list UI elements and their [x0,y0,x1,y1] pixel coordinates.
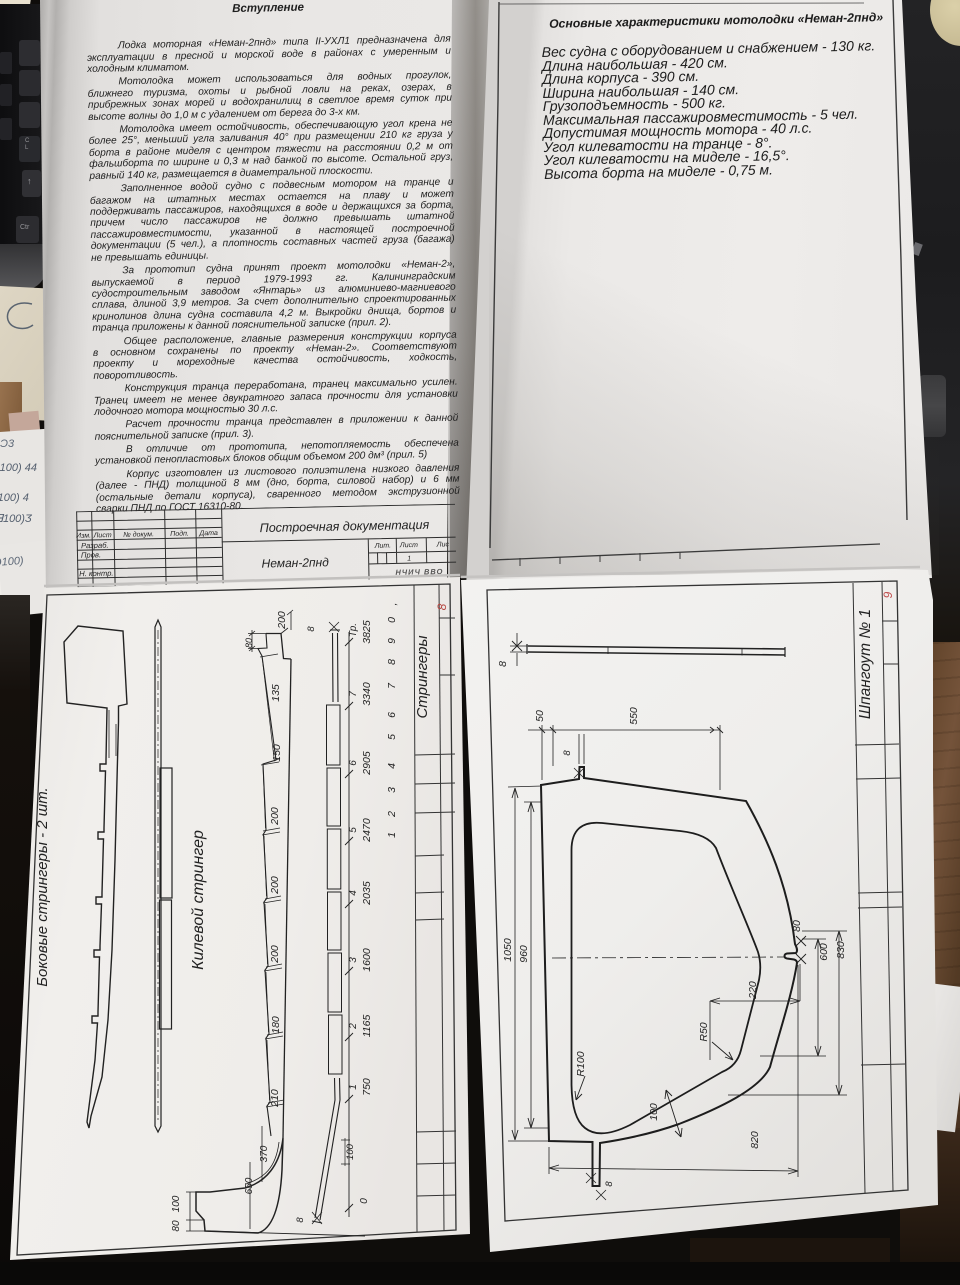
svg-text:Стрингеры: Стрингеры [414,635,431,718]
svg-text:550: 550 [628,707,640,725]
svg-text:820: 820 [749,1131,761,1149]
svg-text:1050: 1050 [502,938,514,962]
svg-text:180: 180 [270,1016,282,1034]
svg-text:370: 370 [259,1145,270,1162]
svg-text:600: 600 [818,943,830,961]
svg-text:R100: R100 [575,1051,587,1076]
svg-text:Разраб.: Разраб. [81,541,109,551]
svg-text:200: 200 [269,807,281,826]
svg-text:8: 8 [306,626,317,632]
svg-text:5: 5 [386,734,398,740]
svg-text:№ докум.: № докум. [123,530,154,539]
svg-text:2905: 2905 [361,751,373,776]
svg-text:100: 100 [345,1143,356,1160]
svg-text:200: 200 [276,611,288,630]
svg-text:2: 2 [386,811,398,818]
svg-text:5: 5 [348,827,359,833]
svg-text:Подп.: Подп. [170,530,189,538]
svg-text:8: 8 [386,659,398,665]
svg-text:Шпангоут № 1: Шпангоут № 1 [857,609,874,719]
svg-text:4: 4 [348,890,359,896]
svg-text:80: 80 [244,638,254,648]
svg-text:200: 200 [269,876,281,895]
svg-text:2470: 2470 [361,818,373,843]
svg-text:80: 80 [791,920,803,932]
svg-text:Пров.: Пров. [81,550,101,559]
svg-text:4: 4 [386,763,398,769]
svg-text:80: 80 [171,1220,182,1232]
svg-text:200: 200 [269,945,281,964]
svg-text:3340: 3340 [361,682,373,706]
svg-text:,: , [387,603,399,606]
svg-text:Килевой стрингер: Килевой стрингер [190,830,207,970]
svg-text:1165: 1165 [361,1015,373,1038]
svg-text:8: 8 [295,1217,306,1223]
svg-text:100: 100 [171,1195,182,1212]
svg-text:R50: R50 [698,1022,710,1041]
svg-text:8: 8 [562,750,573,756]
svg-text:Изм.: Изм. [76,533,91,540]
svg-text:1600: 1600 [361,948,373,972]
svg-text:Лист: Лист [399,542,418,549]
svg-text:8: 8 [604,1181,615,1187]
svg-text:1: 1 [386,832,398,838]
svg-text:Лит.: Лит. [374,542,392,549]
svg-text:2: 2 [348,1023,359,1030]
svg-text:750: 750 [361,1078,373,1096]
svg-text:100: 100 [648,1103,660,1121]
svg-text:Лист: Лист [93,532,112,539]
svg-text:6: 6 [348,760,359,766]
svg-text:650: 650 [244,1177,255,1194]
svg-text:0: 0 [359,1198,370,1204]
svg-text:Построечная документация: Построечная документация [260,518,430,535]
svg-text:135: 135 [270,684,282,702]
svg-text:9: 9 [386,638,398,644]
svg-text:3: 3 [348,957,359,963]
svg-text:8: 8 [497,661,509,667]
svg-text:1: 1 [407,556,411,563]
svg-text:960: 960 [518,945,530,963]
svg-text:Дата: Дата [198,530,218,537]
svg-text:150: 150 [271,744,283,762]
svg-text:7: 7 [348,691,359,697]
svg-text:2035: 2035 [361,881,373,906]
svg-text:9: 9 [881,591,895,598]
svg-text:Лис: Лис [436,541,450,548]
svg-text:210: 210 [269,1089,281,1108]
svg-text:Неман-2пнд: Неман-2пнд [261,555,329,570]
svg-text:Тр.: Тр. [348,623,359,637]
svg-text:3825: 3825 [361,620,373,644]
svg-text:220: 220 [747,981,759,1000]
svg-text:Боковые стрингеры - 2 шт.: Боковые стрингеры - 2 шт. [34,787,51,986]
svg-text:8: 8 [435,603,449,610]
svg-text:1: 1 [348,1084,359,1090]
svg-text:0: 0 [386,617,398,623]
svg-text:50: 50 [534,710,546,722]
svg-text:6: 6 [386,712,398,718]
svg-text:3: 3 [386,787,398,793]
svg-text:830: 830 [835,941,847,959]
